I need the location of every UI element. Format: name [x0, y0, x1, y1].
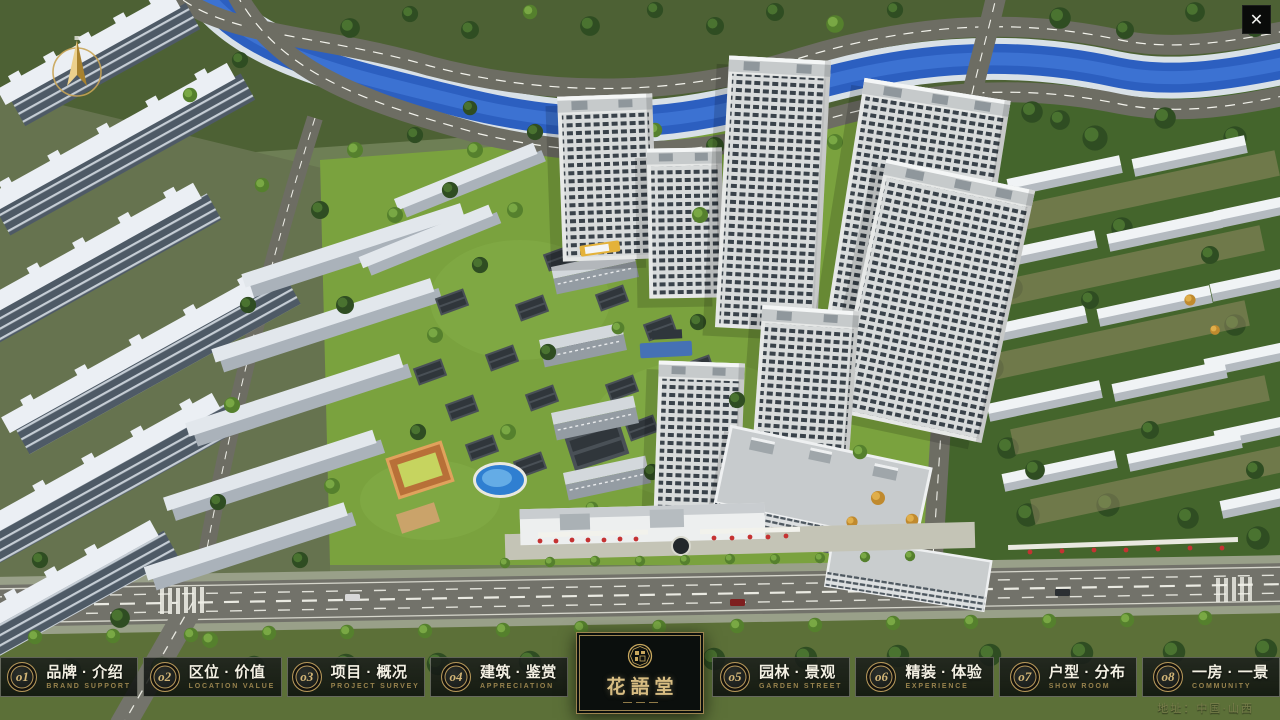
menu-number-badge: o7 [1010, 662, 1040, 692]
menu-item-label: 园林 · 景观 [759, 665, 836, 680]
menu-item-sublabel: GARDEN STREET [759, 683, 842, 690]
menu-item-label: 户型 · 分布 [1049, 665, 1126, 680]
logo-title: 花語堂 [606, 672, 678, 699]
menu-item-label: 精装 · 体验 [905, 665, 982, 680]
menu-item-architecture[interactable]: o4 建筑 · 鉴赏APPRECIATION [430, 657, 568, 697]
close-icon[interactable]: ✕ [1242, 5, 1271, 34]
menu-number-badge: o6 [866, 662, 896, 692]
menu-item-label: 区位 · 价值 [189, 665, 266, 680]
car [1055, 589, 1070, 596]
menu-item-sublabel: COMMUNITY [1192, 683, 1251, 690]
entry-gate [652, 329, 682, 340]
menu-item-sublabel: PROJECT SURVEY [331, 683, 420, 690]
menu-item-label: 项目 · 概况 [331, 665, 408, 680]
menu-number-badge: o2 [150, 662, 180, 692]
menu-item-sublabel: APPRECIATION [480, 683, 554, 690]
menu-number-badge: o5 [720, 662, 750, 692]
menu-item-label: 建筑 · 鉴赏 [480, 665, 557, 680]
menu-item-sublabel: LOCATION VALUE [189, 683, 275, 690]
menu-item-location-value[interactable]: o2 区位 · 价值LOCATION VALUE [143, 657, 281, 697]
menu-item-room-view[interactable]: o8 一房 · 一景COMMUNITY [1142, 657, 1280, 697]
menu-number-badge: o8 [1153, 662, 1183, 692]
car [730, 599, 745, 606]
logo-subtitle-marks [623, 702, 658, 704]
menu-number-badge: o1 [7, 662, 37, 692]
address-text: 地址：中国·山西 [1157, 700, 1254, 716]
menu-item-unit-distribution[interactable]: o7 户型 · 分布SHOW ROOM [999, 657, 1137, 697]
menu-item-project-survey[interactable]: o3 项目 · 概况PROJECT SURVEY [287, 657, 425, 697]
menu-item-sublabel: BRAND SUPPORT [46, 683, 130, 690]
entry-roundabout [672, 537, 690, 555]
project-logo[interactable]: 花語堂 [576, 632, 704, 714]
menu-item-interior-experience[interactable]: o6 精装 · 体验EXPERIENCE [855, 657, 993, 697]
menu-item-sublabel: EXPERIENCE [905, 683, 968, 690]
masterplan-viewport: ✕ o1 品牌 · 介绍BRAND SUPPORT o2 区位 · 价值LOCA… [0, 0, 1280, 720]
menu-number-badge: o3 [292, 662, 322, 692]
menu-item-garden-landscape[interactable]: o5 园林 · 景观GARDEN STREET [712, 657, 850, 697]
menu-number-badge: o4 [441, 662, 471, 692]
menu-item-brand-intro[interactable]: o1 品牌 · 介绍BRAND SUPPORT [0, 657, 138, 697]
car [345, 594, 360, 601]
menu-item-sublabel: SHOW ROOM [1049, 683, 1111, 690]
aerial-masterplan-render [0, 0, 1280, 720]
bottom-menu-bar: o1 品牌 · 介绍BRAND SUPPORT o2 区位 · 价值LOCATI… [0, 657, 1280, 697]
menu-item-label: 一房 · 一景 [1192, 665, 1269, 680]
menu-item-label: 品牌 · 介绍 [46, 665, 123, 680]
seal-emblem-icon [627, 643, 653, 669]
